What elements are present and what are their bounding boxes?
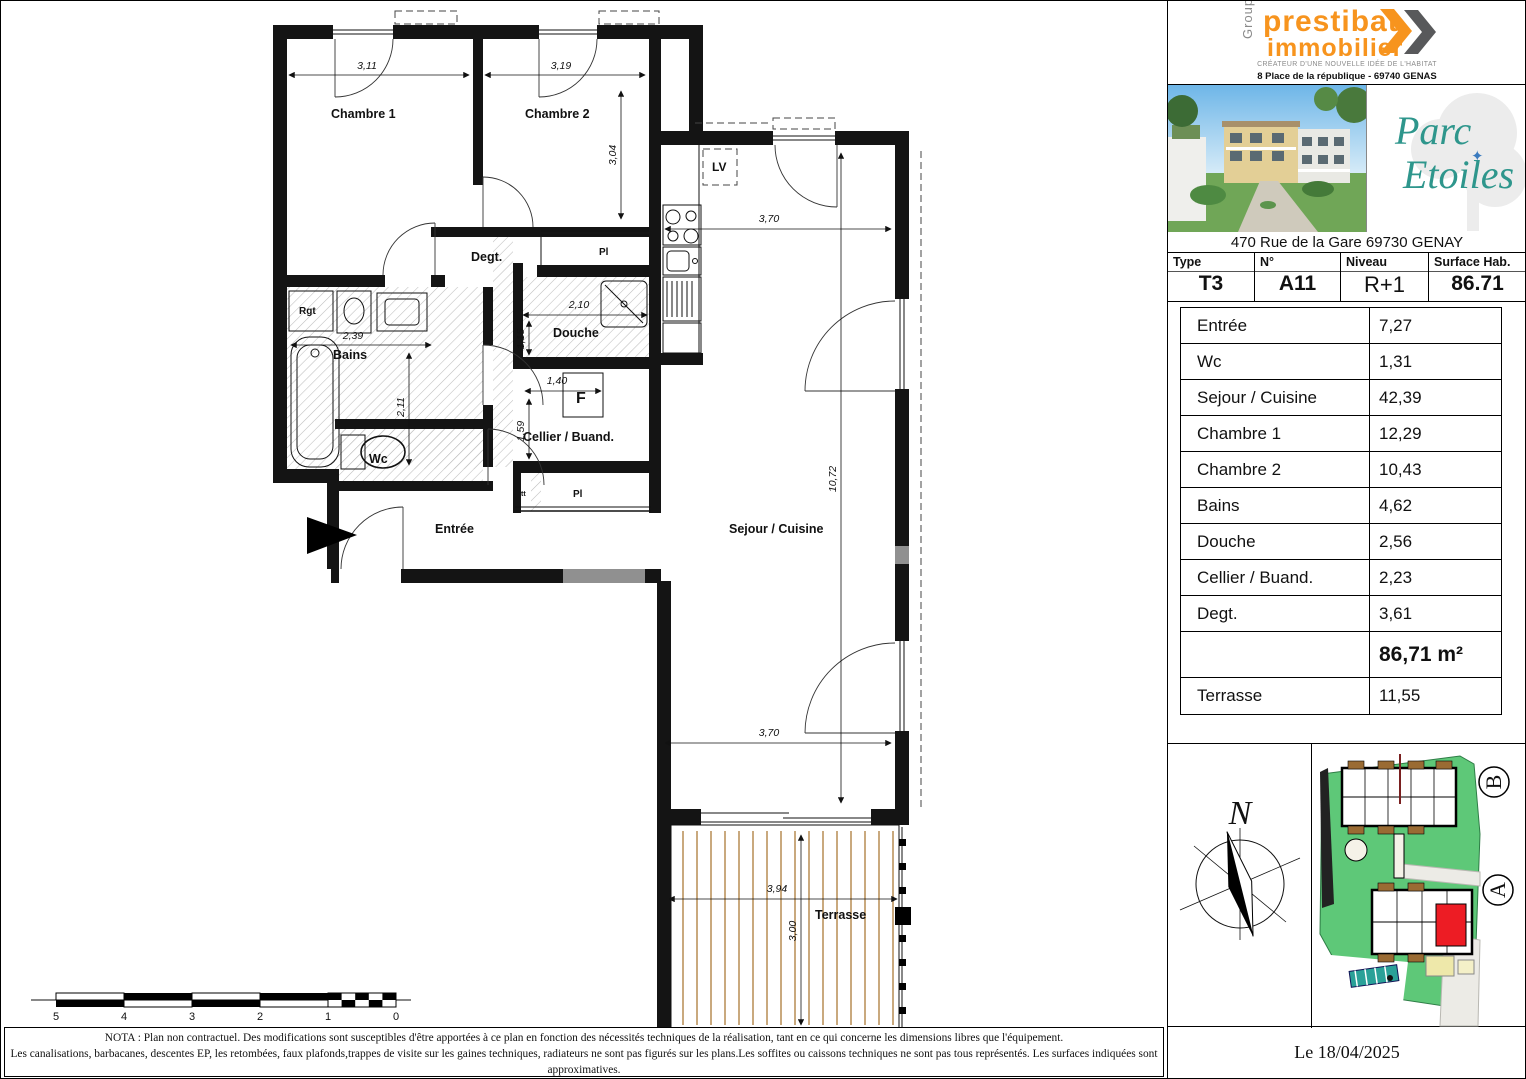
table-row: Cellier / Buand.2,23 (1181, 560, 1501, 596)
plan-sheet: 3,11 3,19 3,04 3,70 10,72 3,70 2,39 2,11… (0, 0, 1526, 1079)
label-rgt: Rgt (299, 306, 316, 317)
kitchen-fixtures (663, 149, 737, 353)
orientation-section: N (1168, 743, 1526, 1027)
room-areas-table: Entrée7,27 Wc1,31 Sejour / Cuisine42,39 … (1180, 307, 1502, 715)
room-label: Degt. (1197, 604, 1238, 624)
nota-line-1: NOTA : Plan non contractuel. Des modific… (5, 1031, 1163, 1047)
site-plan-map: B A (1312, 744, 1526, 1027)
label-entree: Entrée (435, 522, 474, 536)
unit-number-value: A11 (1255, 272, 1340, 296)
unit-type-header: Type (1173, 255, 1201, 269)
unit-surface-value: 86.71 (1429, 272, 1526, 296)
dim-bains-height: 2,11 (395, 397, 407, 418)
unit-level-header: Niveau (1346, 255, 1387, 269)
brand-address: 8 Place de la république - 69740 GENAS (1168, 71, 1526, 82)
terrace-row: Terrasse11,55 (1181, 678, 1501, 714)
room-area: 3,61 (1379, 604, 1412, 624)
room-area: 11,55 (1379, 686, 1420, 706)
compass-panel: N (1168, 744, 1312, 1028)
site-label-a: A (1485, 882, 1510, 898)
project-name-line1: Parc (1395, 107, 1471, 154)
room-label: Terrasse (1197, 686, 1262, 706)
table-row: Degt.3,61 (1181, 596, 1501, 632)
star-icon: ✦ (1471, 147, 1484, 165)
unit-surface-cell: Surface Hab. 86.71 (1429, 253, 1526, 302)
unit-type-cell: Type T3 (1168, 253, 1255, 302)
dim-terrace-height: 3,00 (787, 921, 799, 942)
highlighted-unit (1436, 904, 1466, 946)
building-photo (1168, 85, 1366, 232)
site-building-b (1342, 754, 1456, 834)
room-label: Entrée (1197, 316, 1247, 336)
dim-bains-width: 2,39 (342, 330, 364, 342)
scale-1: 1 (325, 1011, 331, 1023)
table-row: Douche2,56 (1181, 524, 1501, 560)
room-area: 1,31 (1379, 352, 1412, 372)
scale-5: 5 (53, 1011, 59, 1023)
site-plan-panel: B A (1312, 744, 1526, 1028)
dim-cellier-width: 1,40 (547, 375, 568, 387)
unit-info-table: Type T3 N° A11 Niveau R+1 Surface Hab. 8… (1168, 253, 1526, 302)
dim-douche-width: 2,10 (568, 299, 590, 311)
table-row: Chambre 112,29 (1181, 416, 1501, 452)
label-lv: LV (712, 160, 726, 174)
room-label: Chambre 2 (1197, 460, 1281, 480)
dim-ch2-width: 3,19 (551, 60, 572, 72)
label-cellier: Cellier / Buand. (523, 430, 614, 444)
sidebar: Groupe prestibat immobilier CRÉATEUR D'U… (1167, 1, 1526, 1079)
label-sejour: Sejour / Cuisine (729, 522, 824, 536)
label-bains: Bains (333, 348, 367, 362)
table-row: Entrée7,27 (1181, 308, 1501, 344)
total-row: 86,71 m² (1181, 632, 1501, 678)
table-row: Bains4,62 (1181, 488, 1501, 524)
brand-header: Groupe prestibat immobilier CRÉATEUR D'U… (1168, 1, 1526, 85)
scale-2: 2 (257, 1011, 263, 1023)
unit-surface-header: Surface Hab. (1434, 255, 1510, 269)
unit-number-cell: N° A11 (1255, 253, 1341, 302)
dim-sejour-height: 10,72 (827, 466, 839, 492)
room-area: 2,56 (1379, 532, 1412, 552)
date-cell: Le 18/04/2025 (1168, 1027, 1526, 1079)
label-terrasse: Terrasse (815, 908, 866, 922)
label-pl-1: Pl (599, 247, 609, 258)
brand-arrow-icon (1380, 9, 1440, 57)
brand-tagline: CRÉATEUR D'UNE NOUVELLE IDÉE DE L'HABITA… (1168, 61, 1526, 68)
total-area: 86,71 m² (1379, 643, 1463, 667)
unit-level-cell: Niveau R+1 (1341, 253, 1429, 302)
label-f: F (576, 390, 586, 407)
room-label: Wc (1197, 352, 1222, 372)
dim-ch1-width: 3,11 (357, 60, 377, 72)
dim-sejour-width: 3,70 (759, 727, 780, 739)
room-area: 10,43 (1379, 460, 1422, 480)
table-row: Sejour / Cuisine42,39 (1181, 380, 1501, 416)
compass-rose-icon: N (1168, 744, 1311, 1027)
table-row: Chambre 210,43 (1181, 452, 1501, 488)
label-tt: tt (521, 491, 526, 498)
room-label: Bains (1197, 496, 1240, 516)
room-area: 42,39 (1379, 388, 1422, 408)
dim-ch2-height: 3,04 (607, 145, 619, 166)
room-area: 12,29 (1379, 424, 1422, 444)
label-chambre2: Chambre 2 (525, 107, 590, 121)
dim-terrace-width: 3,94 (767, 883, 788, 895)
site-building-a (1372, 883, 1472, 962)
room-area: 7,27 (1379, 316, 1412, 336)
label-douche: Douche (553, 326, 599, 340)
scale-4: 4 (121, 1011, 127, 1023)
room-label: Chambre 1 (1197, 424, 1281, 444)
room-label: Douche (1197, 532, 1256, 552)
label-degt: Degt. (471, 250, 502, 264)
project-logo: Parc Etoiles ✦ (1366, 85, 1526, 232)
room-label: Sejour / Cuisine (1197, 388, 1317, 408)
unit-type-value: T3 (1168, 272, 1254, 296)
project-name-line2: Etoiles (1403, 151, 1514, 198)
label-wc: Wc (369, 452, 388, 466)
nota-box: NOTA : Plan non contractuel. Des modific… (4, 1027, 1164, 1077)
dim-douche-height: 1,15 (515, 329, 527, 350)
table-row: Wc1,31 (1181, 344, 1501, 380)
nota-line-2: Les canalisations, barbacanes, descentes… (5, 1047, 1163, 1079)
scale-3: 3 (189, 1011, 195, 1023)
north-label: N (1228, 795, 1254, 832)
dimension-lines: 3,11 3,19 3,04 3,70 10,72 3,70 2,39 2,11… (289, 60, 897, 1025)
room-area: 4,62 (1379, 496, 1412, 516)
site-label-b: B (1481, 775, 1506, 790)
scale-bar: 5 4 3 2 1 0 (31, 993, 411, 1023)
unit-level-value: R+1 (1341, 272, 1428, 298)
scale-0: 0 (393, 1011, 399, 1023)
brand-groupe-label: Groupe (1240, 0, 1255, 39)
dim-kitchen-width: 3,70 (759, 213, 780, 225)
label-pl-2: Pl (573, 489, 583, 500)
label-chambre1: Chambre 1 (331, 107, 396, 121)
room-area: 2,23 (1379, 568, 1412, 588)
project-visual: Parc Etoiles ✦ (1168, 85, 1526, 232)
unit-number-header: N° (1260, 255, 1274, 269)
floor-plan-drawing: 3,11 3,19 3,04 3,70 10,72 3,70 2,39 2,11… (1, 1, 1167, 1027)
project-address-bar: 470 Rue de la Gare 69730 GENAY (1168, 232, 1526, 253)
room-label: Cellier / Buand. (1197, 568, 1313, 588)
